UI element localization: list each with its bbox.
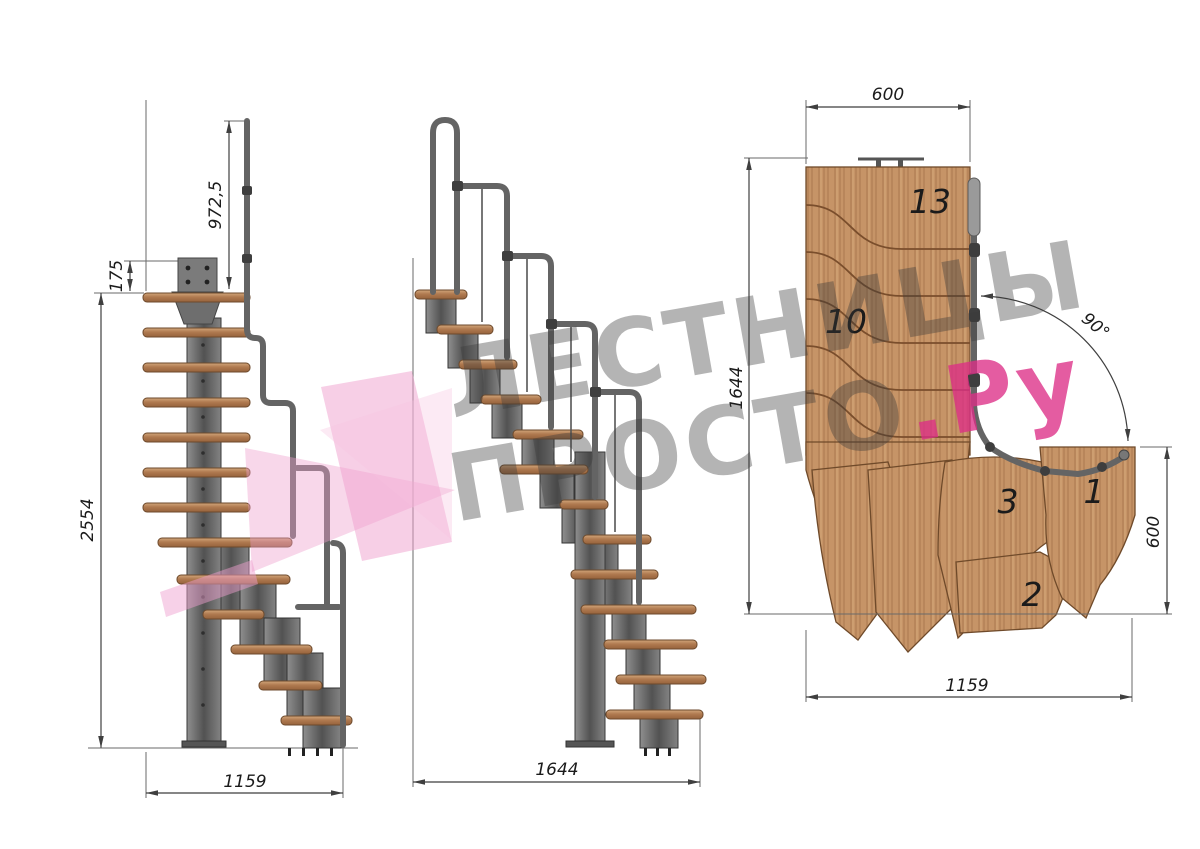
wall-mount-plate bbox=[178, 258, 217, 292]
dimension-label-bottom-length: 1159 bbox=[945, 676, 988, 696]
dimension-label-top-width: 600 bbox=[872, 85, 904, 105]
dimension-label-total-height: 2554 bbox=[78, 498, 98, 541]
plate-bolt bbox=[186, 280, 191, 285]
plate-bolt bbox=[186, 266, 191, 271]
rail-joint bbox=[1097, 462, 1107, 472]
drawing-canvas: 972,5 175 2554 1159 bbox=[0, 0, 1200, 849]
tread bbox=[143, 433, 250, 442]
tread bbox=[143, 328, 250, 337]
rail-end-cap bbox=[1119, 450, 1129, 460]
step-number-2: 2 bbox=[1022, 575, 1043, 614]
dimension-label-rail-height: 972,5 bbox=[206, 181, 226, 230]
step-number-13: 13 bbox=[909, 182, 951, 221]
dimension-label-right-width: 600 bbox=[1144, 516, 1164, 548]
rail-joint bbox=[1040, 466, 1050, 476]
staircase-technical-drawing: 972,5 175 2554 1159 bbox=[0, 0, 1200, 849]
anchor-bolts bbox=[288, 748, 333, 756]
side-elevation-view: 972,5 175 2554 1159 bbox=[78, 100, 358, 798]
handrail-post-cap bbox=[968, 178, 980, 236]
tread bbox=[143, 503, 250, 512]
handrail-loop bbox=[433, 120, 457, 292]
stair-structure-side bbox=[143, 121, 352, 756]
tread bbox=[143, 293, 250, 302]
plate-bolt bbox=[205, 280, 210, 285]
tread bbox=[143, 398, 250, 407]
dimension-label-front-run: 1644 bbox=[535, 760, 578, 780]
column-base-plate bbox=[566, 741, 614, 747]
rail-joint bbox=[452, 181, 463, 191]
tread bbox=[231, 645, 312, 654]
step-number-1: 1 bbox=[1084, 472, 1105, 511]
rail-joint bbox=[242, 186, 252, 195]
plate-bolt bbox=[205, 266, 210, 271]
anchor-bolts bbox=[644, 748, 671, 756]
tread bbox=[143, 468, 250, 477]
tread bbox=[259, 681, 322, 690]
column-base-plate bbox=[182, 741, 226, 747]
dimension-label-run: 1159 bbox=[223, 772, 266, 792]
rail-joint bbox=[502, 251, 513, 261]
tread bbox=[143, 363, 250, 372]
step-number-3: 3 bbox=[998, 482, 1019, 521]
dimension-label-plate-height: 175 bbox=[107, 260, 127, 292]
rail-joint bbox=[242, 254, 252, 263]
tread bbox=[203, 610, 264, 619]
